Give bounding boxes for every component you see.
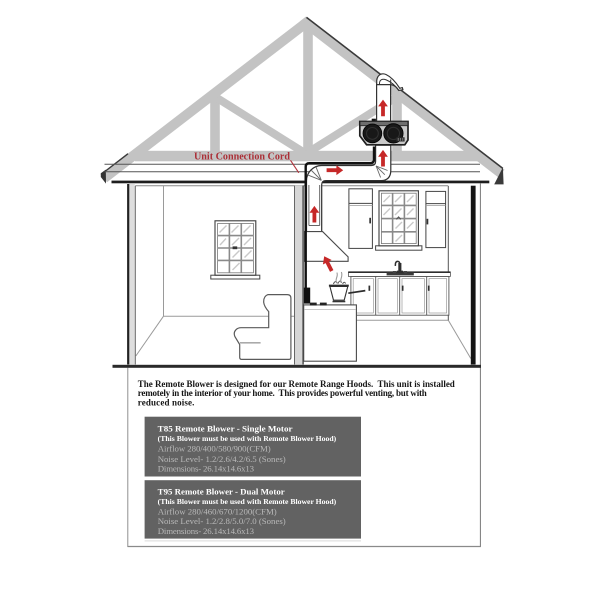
svg-text:(This Blower must be used with: (This Blower must be used with Remote Bl… [158, 435, 337, 443]
svg-text:reduced noise.: reduced noise. [138, 398, 195, 408]
svg-text:Noise Level- 1.2/2.8/5.0/7.0 (: Noise Level- 1.2/2.8/5.0/7.0 (Sones) [158, 516, 286, 526]
svg-text:Noise Level- 1.2/2.6/4.2/6.5 (: Noise Level- 1.2/2.6/4.2/6.5 (Sones) [158, 454, 286, 464]
svg-text:T95 Remote Blower - Dual Motor: T95 Remote Blower - Dual Motor [158, 487, 285, 497]
svg-text:(This Blower must be used with: (This Blower must be used with Remote Bl… [158, 498, 337, 506]
svg-text:Unit Connection Cord: Unit Connection Cord [194, 151, 290, 162]
svg-text:Airflow 280/400/580/900(CFM): Airflow 280/400/580/900(CFM) [158, 444, 271, 454]
svg-text:Dimensions- 26.14x14.6x13: Dimensions- 26.14x14.6x13 [158, 526, 255, 536]
svg-text:Airflow 280/460/670/1200(CFM): Airflow 280/460/670/1200(CFM) [158, 506, 277, 516]
svg-text:Dimensions- 26.14x14.6x13: Dimensions- 26.14x14.6x13 [158, 464, 255, 474]
svg-text:T85 Remote Blower - Single Mot: T85 Remote Blower - Single Motor [158, 424, 293, 434]
